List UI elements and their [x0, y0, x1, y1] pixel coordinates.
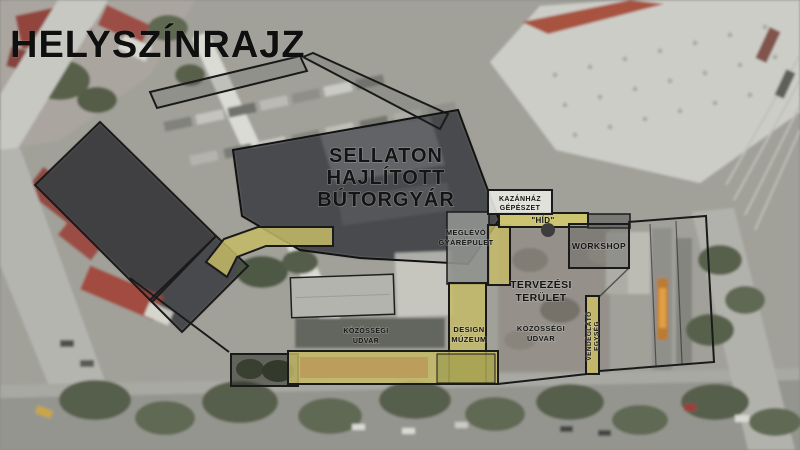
catering-unit-label-line2: EGYSÉG [592, 321, 601, 351]
outlined-yard-building [290, 274, 394, 318]
workshop-label: WORKSHOP [572, 241, 626, 251]
design-area-label-line1: TERVEZÉSI [510, 278, 572, 291]
helyszinrajz-svg: HELYSZÍNRAJZ SELLATON HAJLÍTOTT BÚTORGYÁ… [0, 0, 800, 450]
existing-building-shape [447, 212, 489, 284]
tree-in-block [236, 359, 264, 379]
design-museum-label-line2: MÚZEUM [451, 335, 486, 344]
design-museum-label-line1: DESIGN [453, 325, 484, 334]
bridge-label: "HÍD" [531, 216, 554, 225]
factory-label-line2: HAJLÍTOTT [327, 166, 446, 189]
boiler-house-label-line2: GÉPÉSZET [500, 203, 541, 212]
yard-dirt-patch [300, 357, 428, 378]
existing-building-label-line2: GYÁRÉPÜLET [438, 238, 493, 247]
page-title: HELYSZÍNRAJZ [10, 22, 306, 66]
community-yard-west-label-line2: UDVAR [353, 338, 379, 345]
factory-label-line3: BÚTORGYÁR [317, 187, 455, 211]
boiler-house-label-line1: KAZÁNHÁZ [499, 194, 541, 203]
site-plan-image: HELYSZÍNRAJZ SELLATON HAJLÍTOTT BÚTORGYÁ… [0, 0, 800, 450]
community-yard-west-label-line1: KÖZÖSSÉGI [343, 326, 388, 335]
factory-label-line1: SELLATON [329, 145, 443, 167]
catering-unit-label-line1: VENDÉGLÁTÓ [584, 311, 593, 360]
community-yard-east-label-line2: UDVAR [527, 334, 555, 343]
plan-dot-marker [541, 223, 555, 237]
existing-building-label-line1: MEGLÉVŐ [446, 228, 486, 237]
yard-green-square [437, 354, 495, 383]
community-yard-east-label-line1: KÖZÖSSÉGI [517, 324, 565, 333]
design-area-label-line2: TERÜLET [515, 291, 566, 304]
